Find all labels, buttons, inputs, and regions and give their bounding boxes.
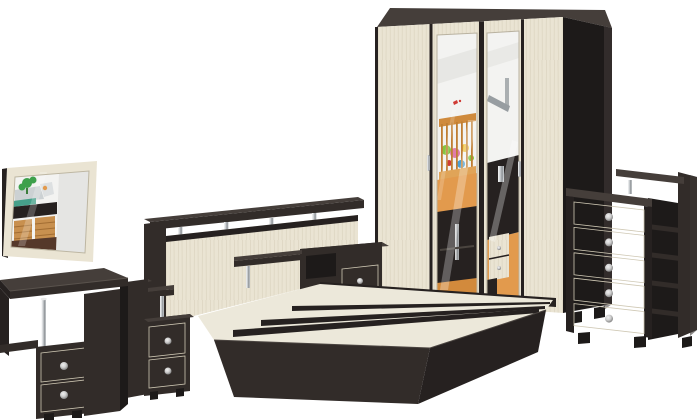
drawer-knob xyxy=(165,368,172,375)
nightstand-right-cubby xyxy=(306,253,336,279)
drawer-knob xyxy=(165,338,172,345)
wall-mirror: Wall mirror xyxy=(2,161,97,262)
nightstand-left-post xyxy=(160,296,164,320)
chest-shelf-back xyxy=(648,198,678,340)
drawer-knob xyxy=(605,213,613,221)
door-divider-center xyxy=(479,21,484,307)
bedroom-set-illustration: Wall mirror Four-door wardrobe with two … xyxy=(0,0,700,420)
door-divider-3 xyxy=(521,19,524,310)
chest-shelf-post xyxy=(628,180,632,194)
wardrobe: Four-door wardrobe with two mirror doors xyxy=(375,8,612,324)
chest-top-shelf xyxy=(616,169,684,184)
drawer-knob xyxy=(605,315,613,323)
bed-base-left-face xyxy=(214,340,430,404)
mirror-reflection xyxy=(10,168,62,258)
drawer-knob xyxy=(357,278,363,284)
nightstand-right-post xyxy=(246,266,250,288)
drawer-knob xyxy=(605,238,613,246)
drawer-knob xyxy=(605,264,613,272)
drawer-knob xyxy=(605,289,613,297)
wardrobe-mirror-door-left xyxy=(437,33,477,297)
wardrobe-handle-right xyxy=(518,161,521,177)
desk-pedestal xyxy=(84,289,120,416)
wardrobe-mirror-door-right xyxy=(487,31,519,299)
drawer-knob xyxy=(60,391,68,399)
furniture-product-photo: Wall mirror Four-door wardrobe with two … xyxy=(0,0,700,420)
dressing-table: Dressing table with two drawers xyxy=(0,268,128,420)
drawer-knob xyxy=(60,362,68,370)
wardrobe-handle-left xyxy=(427,155,430,171)
desk-post xyxy=(42,299,47,350)
